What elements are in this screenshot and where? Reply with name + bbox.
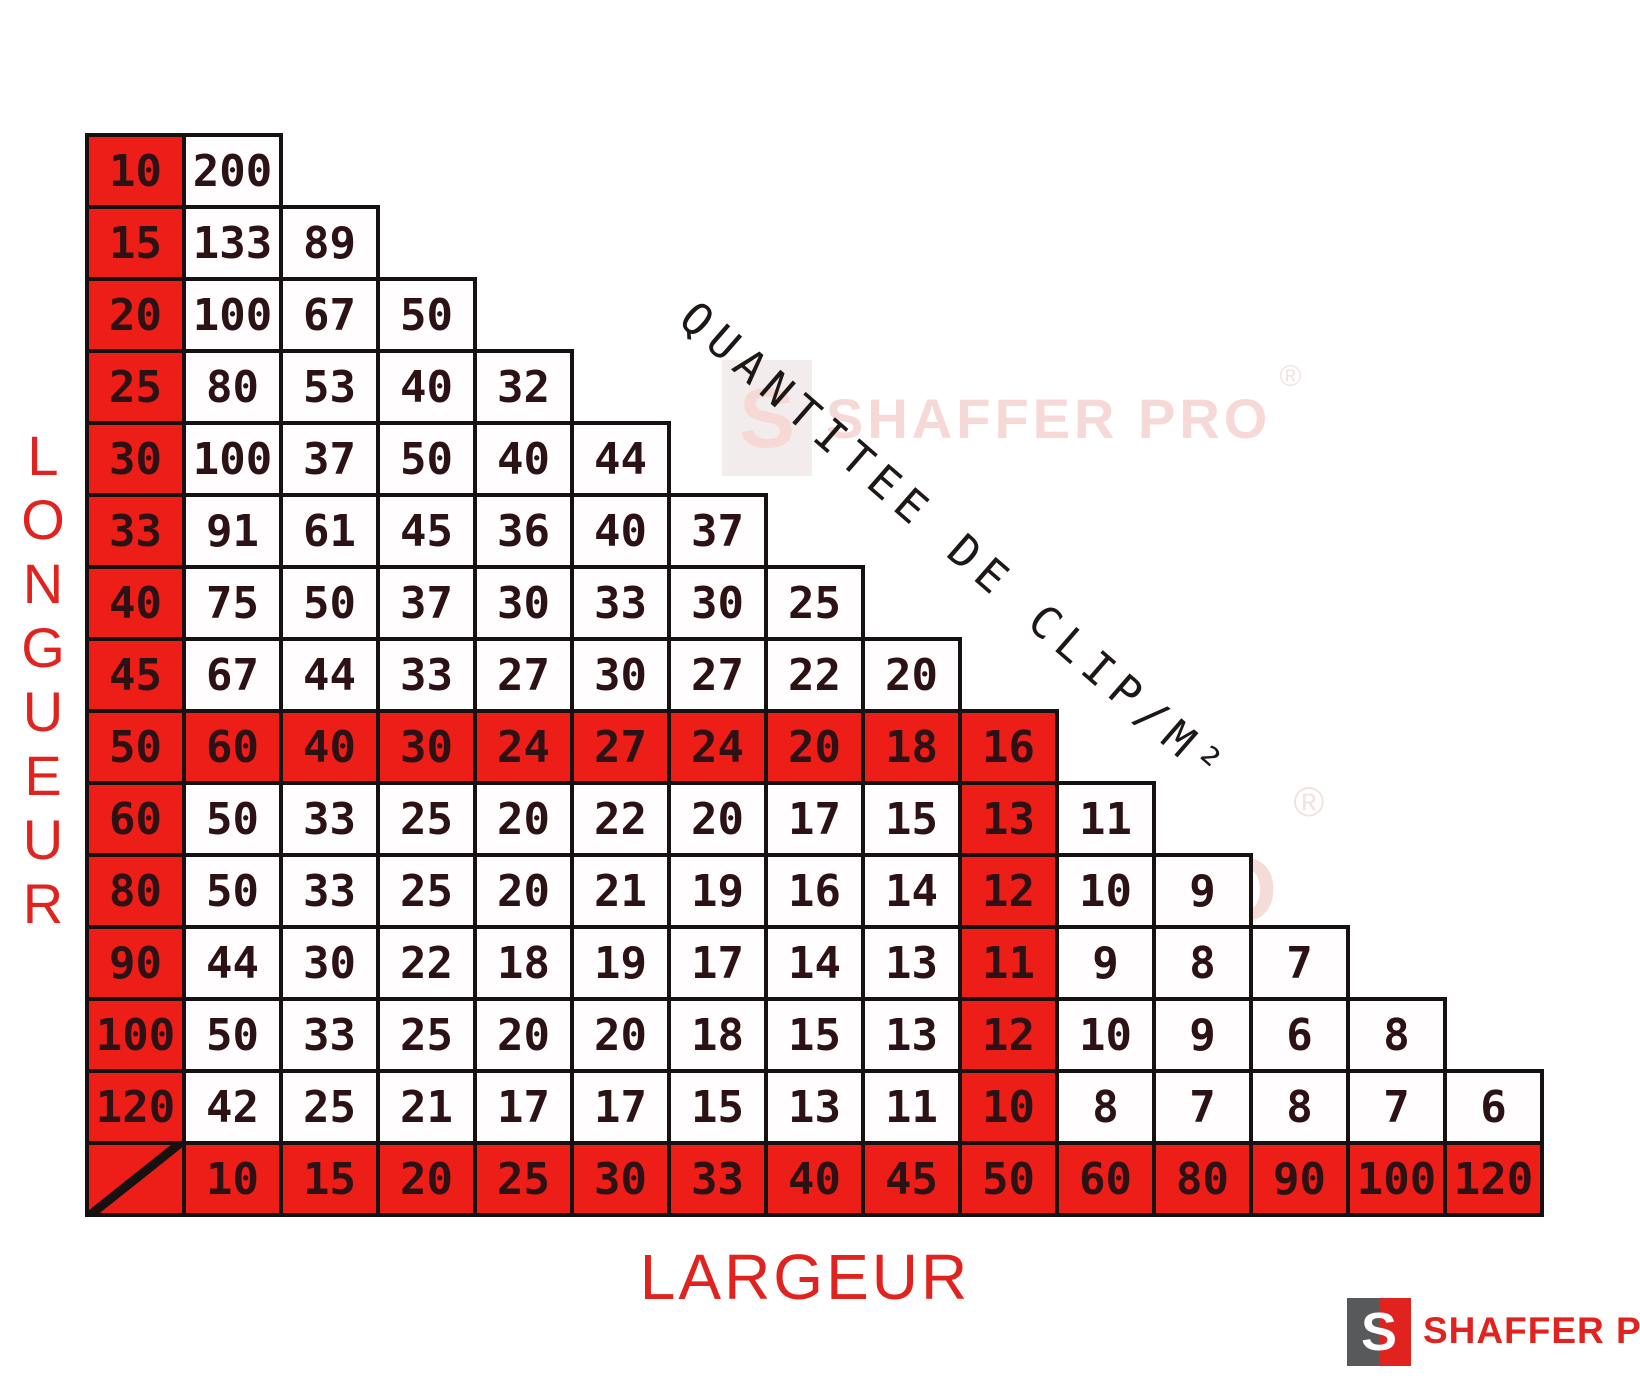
- row-header-cell: 33: [85, 493, 186, 569]
- row-header-cell: 60: [85, 781, 186, 857]
- value-cell: 20: [473, 853, 574, 929]
- value-cell: 32: [473, 349, 574, 425]
- value-cell: 16: [764, 853, 865, 929]
- table-row: 6050332520222017151311: [85, 781, 1544, 857]
- quantity-table: 1020015133892010067502580534032301003750…: [85, 133, 1544, 1217]
- value-cell: 11: [1055, 781, 1156, 857]
- col-header-cell: 40: [764, 1141, 865, 1217]
- value-cell: 200: [182, 133, 283, 209]
- longueur-letter: U: [23, 808, 63, 872]
- value-cell: 14: [764, 925, 865, 1001]
- largeur-axis-label: LARGEUR: [85, 1240, 1525, 1314]
- value-cell: 13: [861, 925, 962, 1001]
- value-cell: 60: [182, 709, 283, 785]
- value-cell: 9: [1055, 925, 1156, 1001]
- value-cell: 25: [376, 781, 477, 857]
- value-cell: 36: [473, 493, 574, 569]
- value-cell: 7: [1346, 1069, 1447, 1145]
- col-header-cell: 50: [958, 1141, 1059, 1217]
- value-cell: 37: [376, 565, 477, 641]
- col-header-cell: 10: [182, 1141, 283, 1217]
- table-row: 101520253033404550608090100120: [85, 1141, 1544, 1217]
- value-cell: 8: [1249, 1069, 1350, 1145]
- brand-logo-icon: S: [1347, 1298, 1411, 1366]
- value-cell: 18: [667, 997, 768, 1073]
- value-cell: 40: [279, 709, 380, 785]
- value-cell: 27: [570, 709, 671, 785]
- value-cell: 8: [1055, 1069, 1156, 1145]
- longueur-letter: G: [21, 616, 65, 680]
- value-cell: 91: [182, 493, 283, 569]
- col-header-cell: 33: [667, 1141, 768, 1217]
- col-header-cell: 45: [861, 1141, 962, 1217]
- value-cell: 8: [1346, 997, 1447, 1073]
- table-row: 3010037504044: [85, 421, 1544, 497]
- value-cell: 19: [570, 925, 671, 1001]
- row-header-cell: 120: [85, 1069, 186, 1145]
- clip-quantity-chart: LONGUEUR S SHAFFER PRO ® S SHAFFER PRO ®…: [0, 0, 1640, 1382]
- value-cell: 100: [182, 421, 283, 497]
- value-cell: 33: [376, 637, 477, 713]
- value-cell: 44: [570, 421, 671, 497]
- corner-cell: [85, 1141, 186, 1217]
- value-cell: 9: [1152, 853, 1253, 929]
- value-cell: 89: [279, 205, 380, 281]
- value-cell: 30: [667, 565, 768, 641]
- value-cell: 13: [764, 1069, 865, 1145]
- value-cell: 10: [1055, 997, 1156, 1073]
- brand-monogram: S: [1361, 1305, 1397, 1359]
- table-row: 50604030242724201816: [85, 709, 1544, 785]
- longueur-letter: O: [21, 488, 65, 552]
- value-cell: 20: [861, 637, 962, 713]
- value-cell: 22: [376, 925, 477, 1001]
- value-cell: 33: [570, 565, 671, 641]
- value-cell: 10: [958, 1069, 1059, 1145]
- value-cell: 30: [279, 925, 380, 1001]
- value-cell: 25: [376, 853, 477, 929]
- col-header-cell: 60: [1055, 1141, 1156, 1217]
- value-cell: 50: [182, 997, 283, 1073]
- value-cell: 21: [570, 853, 671, 929]
- value-cell: 12: [958, 853, 1059, 929]
- value-cell: 15: [861, 781, 962, 857]
- table-row: 4075503730333025: [85, 565, 1544, 641]
- value-cell: 42: [182, 1069, 283, 1145]
- value-cell: 11: [861, 1069, 962, 1145]
- longueur-letter: E: [24, 744, 61, 808]
- value-cell: 67: [279, 277, 380, 353]
- col-header-cell: 30: [570, 1141, 671, 1217]
- value-cell: 22: [570, 781, 671, 857]
- row-header-cell: 45: [85, 637, 186, 713]
- value-cell: 50: [182, 781, 283, 857]
- value-cell: 17: [667, 925, 768, 1001]
- value-cell: 45: [376, 493, 477, 569]
- value-cell: 15: [764, 997, 865, 1073]
- longueur-letter: U: [23, 680, 63, 744]
- value-cell: 30: [570, 637, 671, 713]
- value-cell: 30: [473, 565, 574, 641]
- value-cell: 20: [570, 997, 671, 1073]
- value-cell: 37: [279, 421, 380, 497]
- table-row: 2580534032: [85, 349, 1544, 425]
- value-cell: 6: [1443, 1069, 1544, 1145]
- col-header-cell: 80: [1152, 1141, 1253, 1217]
- value-cell: 24: [473, 709, 574, 785]
- brand-name: SHAFFER PRO: [1423, 1310, 1640, 1352]
- value-cell: 27: [473, 637, 574, 713]
- value-cell: 50: [376, 421, 477, 497]
- table-row: 10050332520201815131210968: [85, 997, 1544, 1073]
- value-cell: 7: [1249, 925, 1350, 1001]
- row-header-cell: 90: [85, 925, 186, 1001]
- value-cell: 50: [182, 853, 283, 929]
- row-header-cell: 20: [85, 277, 186, 353]
- value-cell: 40: [376, 349, 477, 425]
- value-cell: 53: [279, 349, 380, 425]
- value-cell: 80: [182, 349, 283, 425]
- value-cell: 20: [764, 709, 865, 785]
- value-cell: 50: [376, 277, 477, 353]
- row-header-cell: 80: [85, 853, 186, 929]
- col-header-cell: 90: [1249, 1141, 1350, 1217]
- table-row: 10200: [85, 133, 1544, 209]
- value-cell: 17: [570, 1069, 671, 1145]
- value-cell: 13: [861, 997, 962, 1073]
- table-row: 12042252117171513111087876: [85, 1069, 1544, 1145]
- longueur-letter: L: [27, 424, 58, 488]
- table-row: 90443022181917141311987: [85, 925, 1544, 1001]
- col-header-cell: 15: [279, 1141, 380, 1217]
- table-row: 33916145364037: [85, 493, 1544, 569]
- value-cell: 20: [473, 997, 574, 1073]
- value-cell: 8: [1152, 925, 1253, 1001]
- value-cell: 11: [958, 925, 1059, 1001]
- row-header-cell: 50: [85, 709, 186, 785]
- row-header-cell: 40: [85, 565, 186, 641]
- longueur-axis-label: LONGUEUR: [12, 424, 74, 936]
- value-cell: 67: [182, 637, 283, 713]
- value-cell: 50: [279, 565, 380, 641]
- value-cell: 44: [279, 637, 380, 713]
- value-cell: 15: [667, 1069, 768, 1145]
- col-header-cell: 100: [1346, 1141, 1447, 1217]
- row-header-cell: 25: [85, 349, 186, 425]
- longueur-letter: R: [23, 872, 63, 936]
- value-cell: 33: [279, 853, 380, 929]
- value-cell: 20: [667, 781, 768, 857]
- value-cell: 12: [958, 997, 1059, 1073]
- value-cell: 25: [764, 565, 865, 641]
- value-cell: 33: [279, 997, 380, 1073]
- value-cell: 16: [958, 709, 1059, 785]
- row-header-cell: 100: [85, 997, 186, 1073]
- value-cell: 18: [473, 925, 574, 1001]
- row-header-cell: 10: [85, 133, 186, 209]
- value-cell: 27: [667, 637, 768, 713]
- value-cell: 17: [764, 781, 865, 857]
- value-cell: 13: [958, 781, 1059, 857]
- value-cell: 100: [182, 277, 283, 353]
- value-cell: 18: [861, 709, 962, 785]
- value-cell: 24: [667, 709, 768, 785]
- value-cell: 14: [861, 853, 962, 929]
- table-row: 1513389: [85, 205, 1544, 281]
- value-cell: 25: [376, 997, 477, 1073]
- col-header-cell: 120: [1443, 1141, 1544, 1217]
- value-cell: 9: [1152, 997, 1253, 1073]
- row-header-cell: 30: [85, 421, 186, 497]
- table-row: 201006750: [85, 277, 1544, 353]
- value-cell: 40: [570, 493, 671, 569]
- value-cell: 37: [667, 493, 768, 569]
- row-header-cell: 15: [85, 205, 186, 281]
- value-cell: 40: [473, 421, 574, 497]
- value-cell: 75: [182, 565, 283, 641]
- col-header-cell: 25: [473, 1141, 574, 1217]
- col-header-cell: 20: [376, 1141, 477, 1217]
- table-row: 80503325202119161412109: [85, 853, 1544, 929]
- value-cell: 20: [473, 781, 574, 857]
- value-cell: 7: [1152, 1069, 1253, 1145]
- value-cell: 133: [182, 205, 283, 281]
- value-cell: 19: [667, 853, 768, 929]
- table-row: 456744332730272220: [85, 637, 1544, 713]
- value-cell: 44: [182, 925, 283, 1001]
- value-cell: 6: [1249, 997, 1350, 1073]
- value-cell: 22: [764, 637, 865, 713]
- value-cell: 30: [376, 709, 477, 785]
- value-cell: 10: [1055, 853, 1156, 929]
- longueur-letter: N: [23, 552, 63, 616]
- value-cell: 33: [279, 781, 380, 857]
- brand-logo: S SHAFFER PRO ®: [1347, 1298, 1640, 1366]
- value-cell: 17: [473, 1069, 574, 1145]
- value-cell: 25: [279, 1069, 380, 1145]
- value-cell: 21: [376, 1069, 477, 1145]
- value-cell: 61: [279, 493, 380, 569]
